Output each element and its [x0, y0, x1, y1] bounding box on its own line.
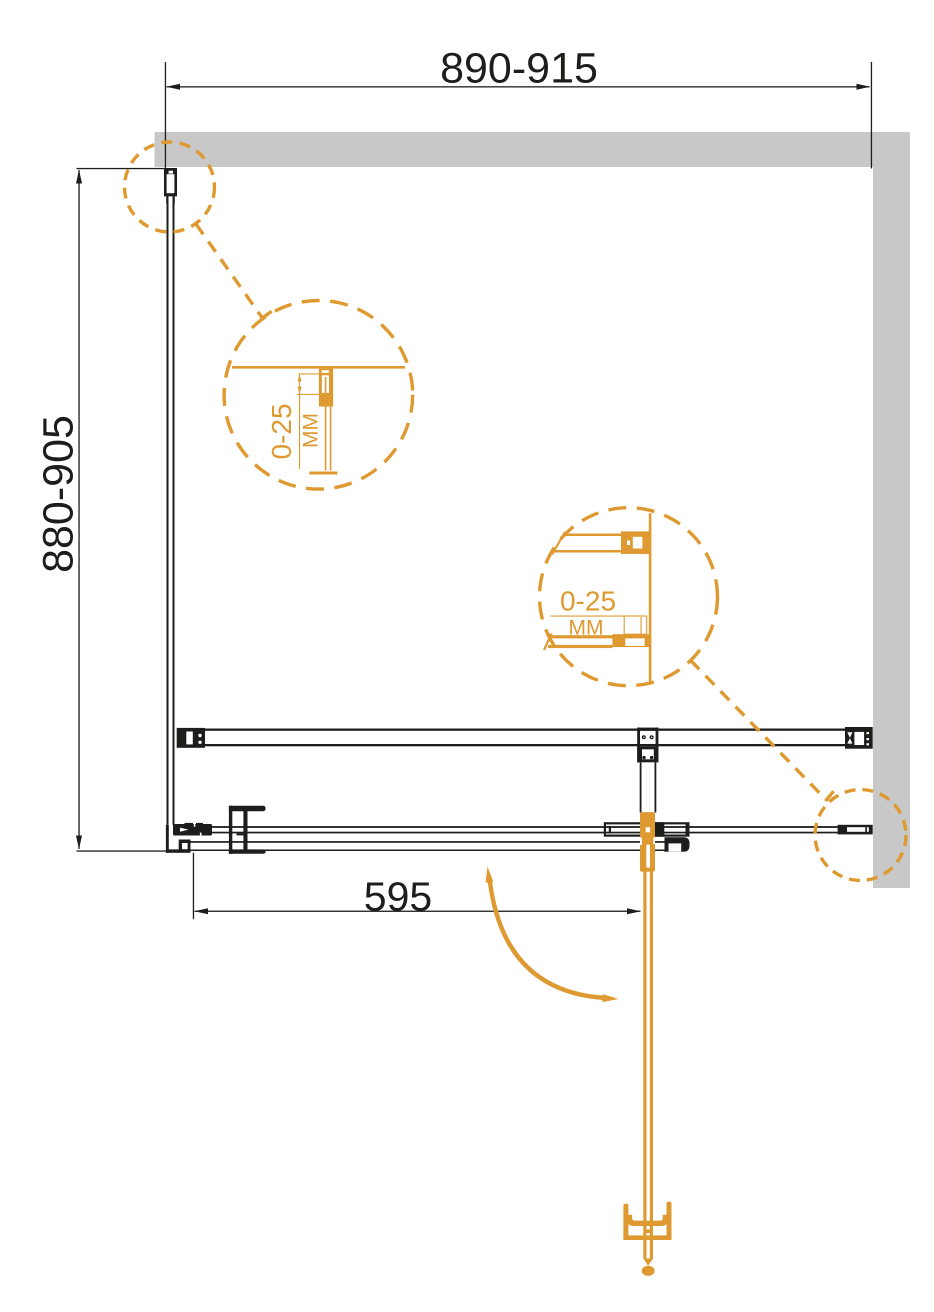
svg-text:595: 595 [364, 874, 432, 920]
svg-text:890-915: 890-915 [440, 45, 598, 93]
svg-text:MM: MM [569, 617, 604, 640]
svg-text:0-25: 0-25 [266, 403, 297, 459]
svg-text:MM: MM [300, 413, 323, 448]
svg-text:0-25: 0-25 [560, 586, 616, 617]
svg-text:880-905: 880-905 [35, 415, 83, 573]
